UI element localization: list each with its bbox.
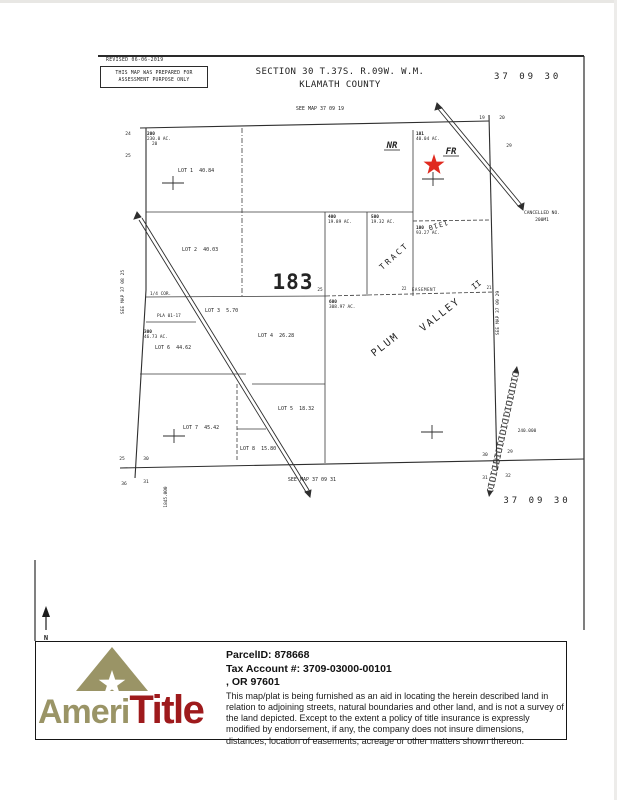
- parcel-100-acres: 93.27 AC.: [416, 230, 440, 236]
- corner-n-b: 20: [499, 115, 505, 121]
- corner-ne-a: 29: [506, 143, 512, 149]
- area-nr-label: NR: [386, 141, 398, 151]
- grid-coord-right: 240.000: [518, 428, 537, 434]
- parcel-info: ParcelID: 878668 Tax Account #: 3709-030…: [226, 649, 566, 747]
- sheet-code-bottom: 37 09 30: [503, 496, 570, 506]
- quarter-corner-label: 1/4 COR.: [150, 291, 171, 297]
- title-block: AmeriTitle ParcelID: 878668 Tax Account …: [35, 641, 567, 740]
- lot-label-1: LOT 1 40.84: [178, 168, 214, 174]
- corner-sw-c: 36: [121, 481, 127, 487]
- parcel-200-note: 20: [152, 141, 158, 147]
- section-number: 183: [273, 270, 314, 294]
- lot-label-7: LOT 7 45.42: [183, 425, 219, 431]
- corner-se-b: 29: [507, 449, 513, 455]
- lot-label-5: LOT 5 18.32: [278, 406, 314, 412]
- logo-text-title: Title: [129, 688, 203, 732]
- tax-account-line: Tax Account #: 3709-03000-00101: [226, 663, 566, 677]
- see-map-bottom: SEE MAP 37 09 31: [288, 477, 336, 483]
- road-diagonal-west: [134, 212, 311, 497]
- railroad-strip: [487, 366, 519, 497]
- cancelled-note-line1: CANCELLED NO.: [524, 210, 560, 216]
- see-map-top: SEE MAP 37 09 19: [296, 106, 344, 112]
- parcel-400-acres: 19.89 AC.: [328, 219, 352, 225]
- corner-nw-a: 24: [125, 131, 131, 137]
- page-border: [35, 56, 584, 641]
- tract-number: 1310: [426, 218, 448, 232]
- lot-label-4: LOT 4 26.28: [258, 333, 294, 339]
- easement-label: EASEMENT: [412, 287, 436, 292]
- see-map-left: SEE MAP 37 08 25: [120, 270, 126, 314]
- parcel-500-acres: 19.32 AC.: [371, 219, 395, 225]
- plum-label: PLUM: [369, 331, 401, 359]
- parcel-id-line: ParcelID: 878668: [226, 649, 566, 663]
- north-arrow-icon: N: [42, 606, 50, 642]
- plat-ref-label: PLA 01-17: [157, 313, 181, 319]
- cancelled-note-line2: 200M1: [535, 217, 549, 223]
- corner-center: 25: [317, 287, 323, 293]
- see-map-right: SEE MAP 37 09 29: [495, 291, 501, 335]
- corner-sw-b: 30: [143, 456, 149, 462]
- lot-label-8: LOT 8 15.80: [240, 446, 276, 452]
- lot-label-3: LOT 3 5.70: [205, 308, 238, 314]
- parcel-600-acres: 308.97 AC.: [329, 304, 355, 310]
- valley-label: VALLEY: [418, 296, 463, 334]
- tract-label: TRACT: [378, 241, 411, 272]
- corner-easement-a: 22: [402, 286, 407, 291]
- logo-text-ameri: Ameri: [38, 693, 129, 731]
- plat-map-canvas: SEE MAP 37 09 19 SEE MAP 37 08 25 SEE MA…: [0, 0, 617, 660]
- parcel-200-acres: 230.0 AC.: [147, 136, 171, 142]
- lot-label-6: LOT 6 44.62: [155, 345, 191, 351]
- corner-se-d: 32: [505, 473, 511, 479]
- ameri-title-logo-mark: [74, 646, 150, 692]
- parcel-101-acres: 40.04 AC.: [416, 136, 440, 142]
- corner-se-a: 30: [482, 452, 488, 458]
- parcel-300-acres: 46.73 AC.: [144, 334, 168, 340]
- disclaimer-text: This map/plat is being furnished as an a…: [226, 691, 566, 747]
- corner-se-c: 31: [482, 475, 488, 481]
- corner-nw-b: 25: [125, 153, 131, 159]
- lot-label-2: LOT 2 40.03: [182, 247, 218, 253]
- city-state-line: , OR 97601: [226, 676, 566, 690]
- ameri-title-wordmark: AmeriTitle: [38, 688, 203, 733]
- corner-easement-b: 21: [487, 285, 492, 290]
- corner-n-a: 19: [479, 115, 485, 121]
- subject-parcel-star-icon: [424, 154, 445, 174]
- corner-sw-d: 31: [143, 479, 149, 485]
- grid-coord-bottom-left: 1845.000: [163, 486, 169, 508]
- lot-lines: [140, 128, 494, 463]
- area-fr-label: FR: [446, 147, 457, 157]
- corner-sw-a: 25: [119, 456, 125, 462]
- valley-suffix-label: II: [470, 278, 483, 291]
